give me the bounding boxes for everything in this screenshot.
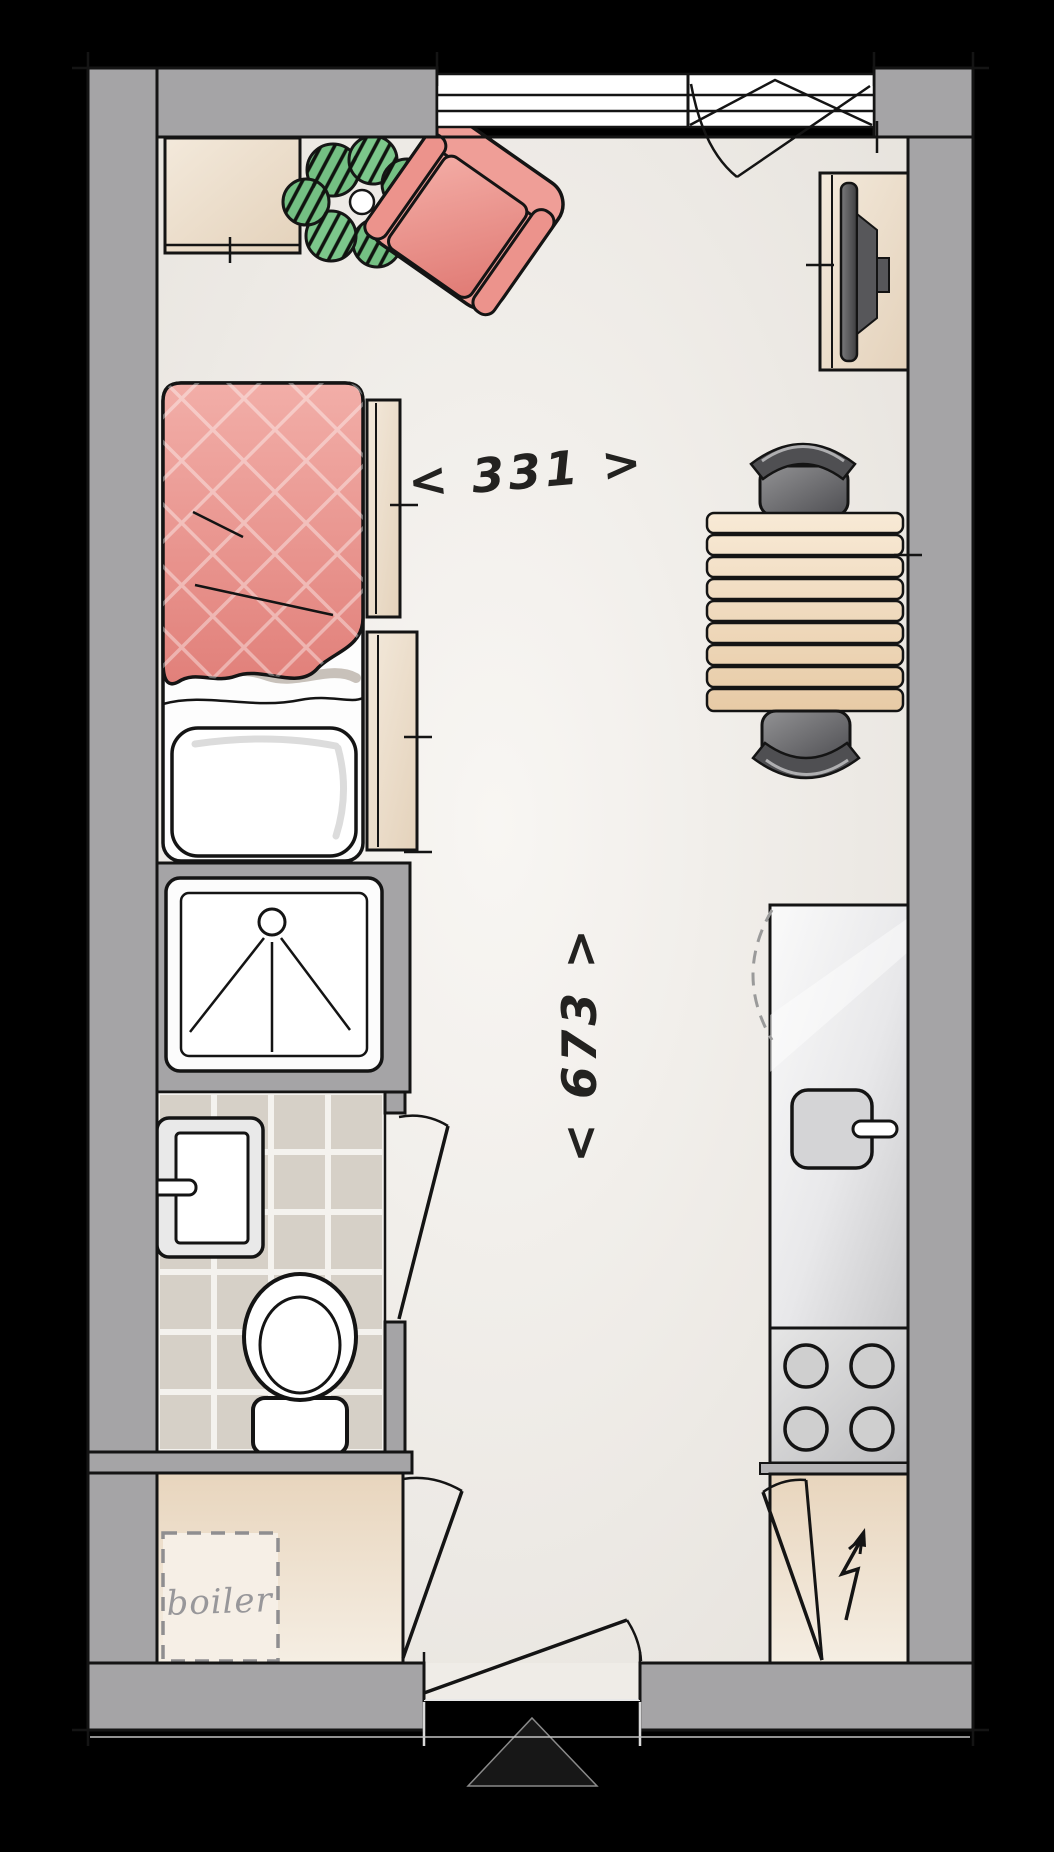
wall-band-bathroom-closet [88,1452,412,1473]
wall-right [908,137,973,1730]
wall-bottom-left [88,1663,424,1730]
dining-chair-top [751,444,855,516]
tv-stand [857,214,877,334]
kitchen-faucet-icon [853,1121,897,1137]
floor-plan-svg: boiler [0,0,1054,1852]
entrance-marker-triangle [468,1718,597,1786]
desk-top [165,138,300,253]
burner [851,1345,893,1387]
stove-lip [760,1463,908,1474]
boiler-closet: boiler [157,1473,403,1663]
window-band [437,74,874,127]
nightstand-upper [367,400,400,617]
boiler-label: boiler [166,1580,274,1624]
burner [785,1408,827,1450]
dimension-height-label: < 673 > [553,925,608,1163]
bathroom-door-jamb-bottom [385,1322,405,1452]
wall-bottom-right [640,1663,973,1730]
toilet-tank [253,1398,347,1454]
dining-chair-bottom [753,711,859,778]
shower [157,863,410,1092]
shower-drain-icon [259,909,285,935]
dining-table [707,513,903,711]
burner [851,1408,893,1450]
toilet-seat [260,1297,340,1393]
bathroom-door-jamb-top [385,1092,405,1113]
toilet [244,1274,356,1454]
tv-cabinet [820,173,908,370]
kitchen [753,905,908,1474]
wall-top-right [874,68,973,137]
bed [163,383,363,861]
bathroom-sink [150,1118,263,1257]
bed-duvet-pattern [163,383,363,684]
wall-left [88,68,157,1730]
tv-mount [877,258,889,292]
floor-plan: boiler [0,0,1054,1852]
tv-screen [841,183,857,361]
nightstand-lower [367,632,417,850]
desk [165,138,300,253]
burner [785,1345,827,1387]
